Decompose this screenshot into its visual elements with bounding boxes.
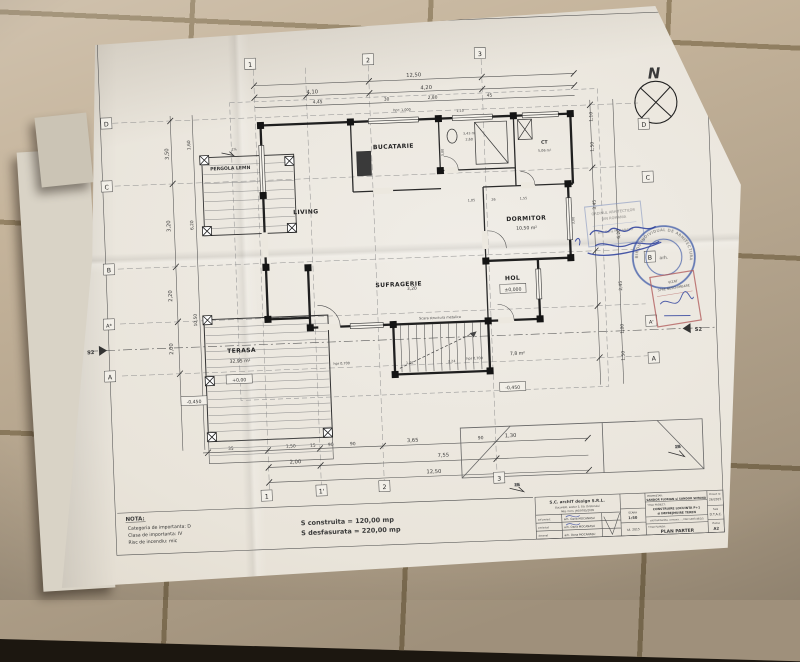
terasa-label: TERASA xyxy=(227,347,256,355)
title-block: S.C. archIT design S.R.L. Bucuresti, sec… xyxy=(535,490,724,540)
plan-sheet-paper: S2 S2 12,50 4,10 4,20 4,45 30 2,80 45 1,… xyxy=(55,0,745,600)
axis-label: 3 xyxy=(478,51,482,58)
dimension-label: 12,50 xyxy=(426,469,441,476)
room-label-bucatarie: BUCATARIE xyxy=(373,143,414,152)
red-stamp-text: SPRE NESCHIMBARE xyxy=(657,283,690,292)
north-label: N xyxy=(647,64,661,82)
sheet-title-value: PLAN PARTER xyxy=(661,528,695,535)
dimension-label: 1,55 xyxy=(520,196,528,200)
dimension-label: 90 xyxy=(478,435,484,441)
axis-label: D xyxy=(104,121,109,128)
parapet-note-kitchen: hpr: 1,000 xyxy=(393,108,411,113)
level-label-right: -0,450 xyxy=(505,385,520,392)
project-no-label: Proiect nr. xyxy=(709,493,721,496)
dimension-label: 3,65 xyxy=(407,438,419,444)
dimension-label: 2,80 xyxy=(428,95,438,101)
structural-columns xyxy=(257,110,584,383)
designer-name: arh. Oana MOCANASU xyxy=(564,532,595,537)
dimension-label: 2,20 xyxy=(168,290,174,302)
axis-label: 1 xyxy=(248,62,252,69)
dimension-label: 15 xyxy=(310,443,316,449)
dimension-labels: 12,50 4,10 4,20 4,45 30 2,80 45 1,10 3,4… xyxy=(159,65,631,485)
axis-label: 2 xyxy=(382,484,386,491)
scale-label: SCARA xyxy=(628,510,637,514)
terasa-level-label: +0,00 xyxy=(232,377,246,384)
slope-label: 1% xyxy=(675,445,681,449)
dimension-label: 1,60 xyxy=(186,140,192,150)
role-label: sef proiect xyxy=(538,518,551,521)
porch-area-label: 7,8 m² xyxy=(510,351,525,358)
total-area-label: S desfasurata = 220,00 mp xyxy=(301,525,401,537)
wc-fixture xyxy=(447,129,458,143)
axis-label: C xyxy=(646,175,651,182)
phase-value: D.T.A.C. xyxy=(709,512,722,516)
doors xyxy=(259,153,540,332)
parapet-note-right: hpr 0,700 xyxy=(466,356,483,361)
scale-value: 1:50 xyxy=(628,516,638,520)
dimension-label: 12,50 xyxy=(406,72,421,79)
dimension-label: 3,00 xyxy=(441,149,445,157)
dimension-label: 3,45 xyxy=(592,200,598,210)
room-label-living: LIVING xyxy=(293,208,319,216)
dimension-label: 45 xyxy=(487,93,493,99)
room-label-hol: HOL xyxy=(505,275,520,283)
dimension-label: 3,20 xyxy=(166,220,172,232)
pergola-area: PERGOLA LEMN 1% xyxy=(201,145,296,235)
dimension-lines xyxy=(169,72,627,486)
dimension-label: 35 xyxy=(228,446,234,452)
photo-of-floor-plan: { "plan": { "north": "N", "rooms": { "bu… xyxy=(0,0,800,600)
kitchen-counter xyxy=(357,151,372,176)
dimension-label: 2,60 xyxy=(465,137,473,141)
room-area-dormitor: 10,50 m² xyxy=(516,225,537,232)
axis-label: 1 xyxy=(265,493,269,500)
dimension-label: 10,50 xyxy=(193,314,199,327)
nota-line: Clasa de importanta: IV xyxy=(128,531,183,539)
dimension-label: 2,00 xyxy=(169,343,175,355)
boiler-fixture xyxy=(517,119,532,140)
stamps: ORDINUL ARHITECTILOR DIN ROMANIA arh. Oa… xyxy=(574,199,702,330)
dimension-label: 1,10 xyxy=(456,109,464,113)
section-label-right: S2 xyxy=(695,327,703,333)
dimension-label: 1,50 xyxy=(620,351,626,361)
axis-label: A' xyxy=(649,320,654,326)
dimension-label: 3,50 xyxy=(164,148,170,160)
dimension-label: 1,30 xyxy=(505,433,517,439)
axis-label: B xyxy=(648,255,653,262)
role-label: proiectat xyxy=(538,526,549,529)
terasa-area-label: 32,95 m² xyxy=(229,358,250,365)
sheet-no-value: A2 xyxy=(713,526,719,531)
oar-stamp-text: DIN ROMANIA xyxy=(601,215,627,222)
red-stamp: VIZAT SPRE NESCHIMBARE xyxy=(650,270,701,326)
project-title-line2: si IMPREJMUIRE TEREN xyxy=(657,510,696,515)
red-stamp-text: VIZAT xyxy=(668,279,679,285)
parapet-note-left: hpr 0,700 xyxy=(333,361,350,366)
dimension-label: 1,50 xyxy=(589,142,595,152)
room-area-ct: 5,06 m² xyxy=(538,148,552,153)
floor-plan-svg: S2 S2 12,50 4,10 4,20 4,45 30 2,80 45 1,… xyxy=(66,0,747,584)
sheet-no-label: Plansa xyxy=(712,522,720,525)
role-label: desenat xyxy=(538,534,548,537)
dimension-label: 4,45 xyxy=(313,99,323,105)
grid-bubbles: 1 2 3 1 1' 2 3 D C B A* A D C B A' A xyxy=(92,41,665,507)
dimension-label: 2,45 xyxy=(618,281,624,291)
section-marker-right-arrow xyxy=(682,323,690,333)
axis-label: D xyxy=(641,122,646,129)
roof-overhang-outline xyxy=(230,89,609,401)
round-stamp: BIROU INDIVIDUAL DE ARHITECTURA arh. xyxy=(632,225,696,289)
dimension-label: 4,10 xyxy=(306,89,318,95)
phase-label: Faza xyxy=(713,508,719,511)
signature-mark xyxy=(604,513,621,535)
axis-label: 3 xyxy=(497,476,501,483)
north-compass: N xyxy=(633,64,677,125)
nota-line: Categoria de importanta: D xyxy=(128,523,192,531)
dimension-label: 2,24 xyxy=(448,359,456,363)
axis-label: A* xyxy=(106,323,113,329)
room-label-ct: CT xyxy=(541,139,549,145)
dimension-label: 1,05 xyxy=(468,198,476,202)
dimension-label: 3,43 m xyxy=(463,131,476,135)
axis-label: 1' xyxy=(319,488,325,495)
site-address: sat Dambenita, comuna ..., CAD 1487/48/2… xyxy=(650,517,704,522)
hol-level-label: ±0,000 xyxy=(504,287,521,294)
dimension-label: 1,00 xyxy=(619,324,625,334)
level-label-left: -0,450 xyxy=(187,399,202,406)
pergola-label: PERGOLA LEMN xyxy=(210,165,251,173)
company-name: S.C. archIT design S.R.L. xyxy=(549,498,605,505)
section-marker-left-arrow xyxy=(99,346,107,356)
stairs-label: Scara structura metalica xyxy=(419,315,461,321)
underlying-page-corner xyxy=(34,112,93,187)
dimension-label: 1,10 xyxy=(588,112,594,122)
slope-label: 1% xyxy=(231,147,237,151)
date-value: iul. 2015 xyxy=(627,527,640,532)
dimension-label: 7,55 xyxy=(437,453,449,459)
dimension-label: 90 xyxy=(350,441,356,447)
room-label-dormitor: DORMITOR xyxy=(506,215,546,224)
sheet-title-label: TITLU PLANSA: xyxy=(648,525,666,529)
nota-block: NOTA: Categoria de importanta: D Clasa d… xyxy=(117,497,534,546)
dimension-label: 6,20 xyxy=(189,220,195,230)
project-no-value: 26/2015 xyxy=(709,497,722,501)
section-label-left: S2 xyxy=(87,350,95,356)
designer-name: arh. Oana MOCANASU xyxy=(564,516,595,521)
dimension-label: 30 xyxy=(384,97,390,103)
dimension-label: 1,50 xyxy=(286,443,296,449)
axis-label: 2 xyxy=(366,57,370,64)
dimension-label: 26 xyxy=(491,198,495,202)
axis-label: B xyxy=(107,267,112,274)
nota-line: Risc de incendiu: mic xyxy=(128,538,178,546)
axis-label: C xyxy=(104,184,109,191)
designer-name: arh. Oana MOCANASU xyxy=(564,524,595,529)
plan-drawing-area: S2 S2 12,50 4,10 4,20 4,45 30 2,80 45 1,… xyxy=(66,0,747,584)
slope-label: 1% xyxy=(514,483,520,487)
terasa-area: TERASA 32,95 m² +0,00 xyxy=(204,315,333,464)
dimension-label: 4,20 xyxy=(420,85,432,91)
round-stamp-center-text: arh. xyxy=(659,255,668,261)
